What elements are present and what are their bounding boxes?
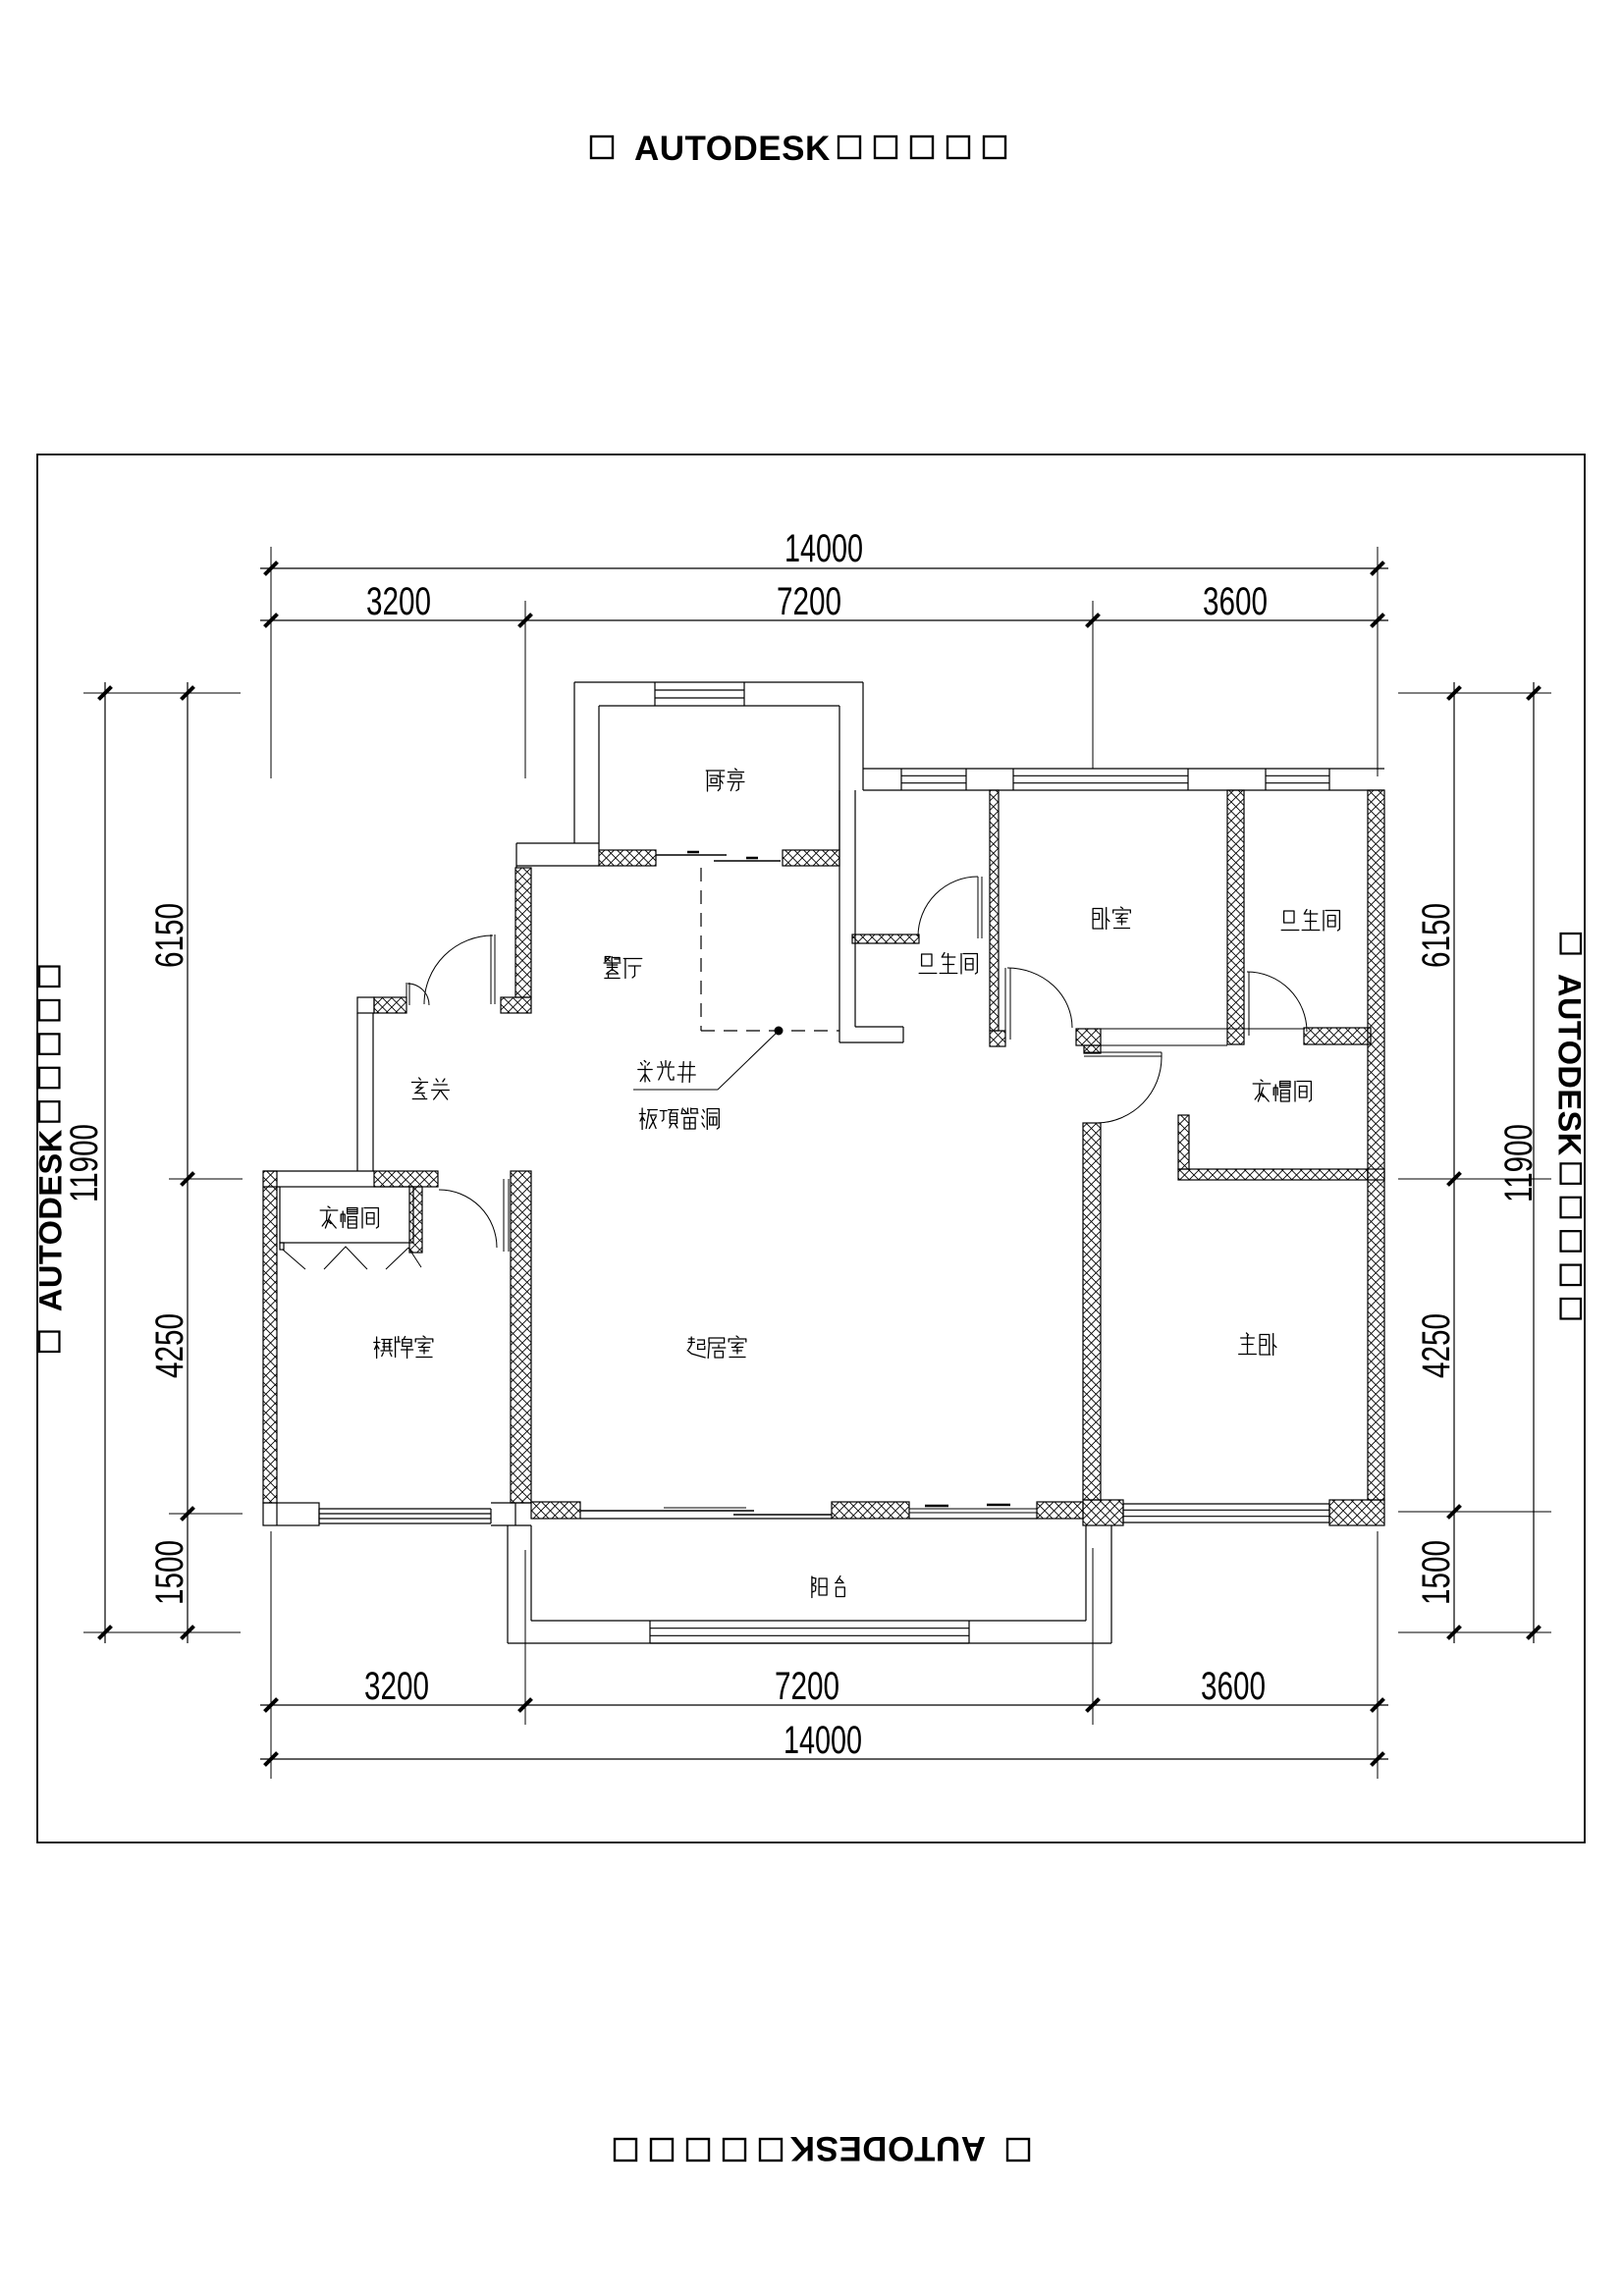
svg-text:14000: 14000	[784, 1719, 862, 1762]
svg-text:3600: 3600	[1203, 580, 1268, 623]
svg-text:3600: 3600	[1201, 1665, 1266, 1708]
svg-text:14000: 14000	[784, 527, 863, 570]
svg-text:6150: 6150	[148, 903, 191, 968]
svg-text:4250: 4250	[1415, 1313, 1458, 1378]
svg-text:7200: 7200	[777, 580, 841, 623]
svg-text:AUTODESK: AUTODESK	[634, 130, 831, 168]
svg-text:11900: 11900	[1497, 1124, 1541, 1202]
svg-text:11900: 11900	[63, 1124, 106, 1202]
svg-text:AUTODESK: AUTODESK	[1552, 974, 1588, 1156]
svg-text:1500: 1500	[148, 1540, 191, 1605]
svg-text:AUTODESK: AUTODESK	[789, 2129, 986, 2167]
svg-text:3200: 3200	[364, 1665, 429, 1708]
svg-text:3200: 3200	[366, 580, 431, 623]
svg-text:7200: 7200	[775, 1665, 839, 1708]
svg-text:1500: 1500	[1415, 1540, 1458, 1605]
svg-text:6150: 6150	[1415, 903, 1458, 968]
svg-text:4250: 4250	[148, 1313, 191, 1378]
